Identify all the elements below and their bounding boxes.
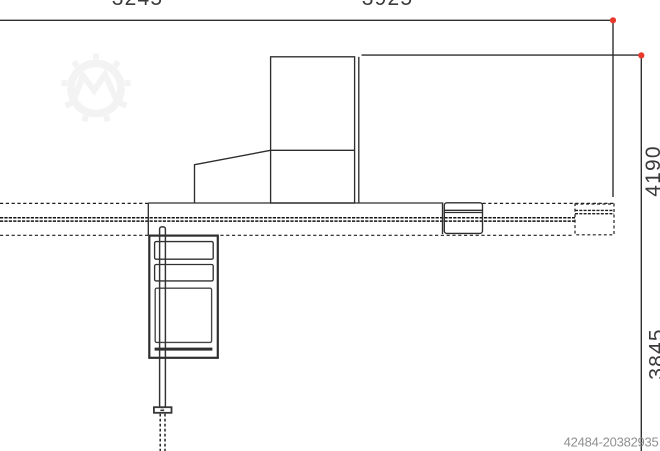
svg-text:42484-20382935: 42484-20382935	[564, 435, 659, 450]
svg-text:4190: 4190	[642, 145, 660, 197]
svg-text:3245: 3245	[112, 0, 164, 10]
svg-text:3925: 3925	[362, 0, 414, 10]
svg-text:3845: 3845	[646, 328, 660, 380]
